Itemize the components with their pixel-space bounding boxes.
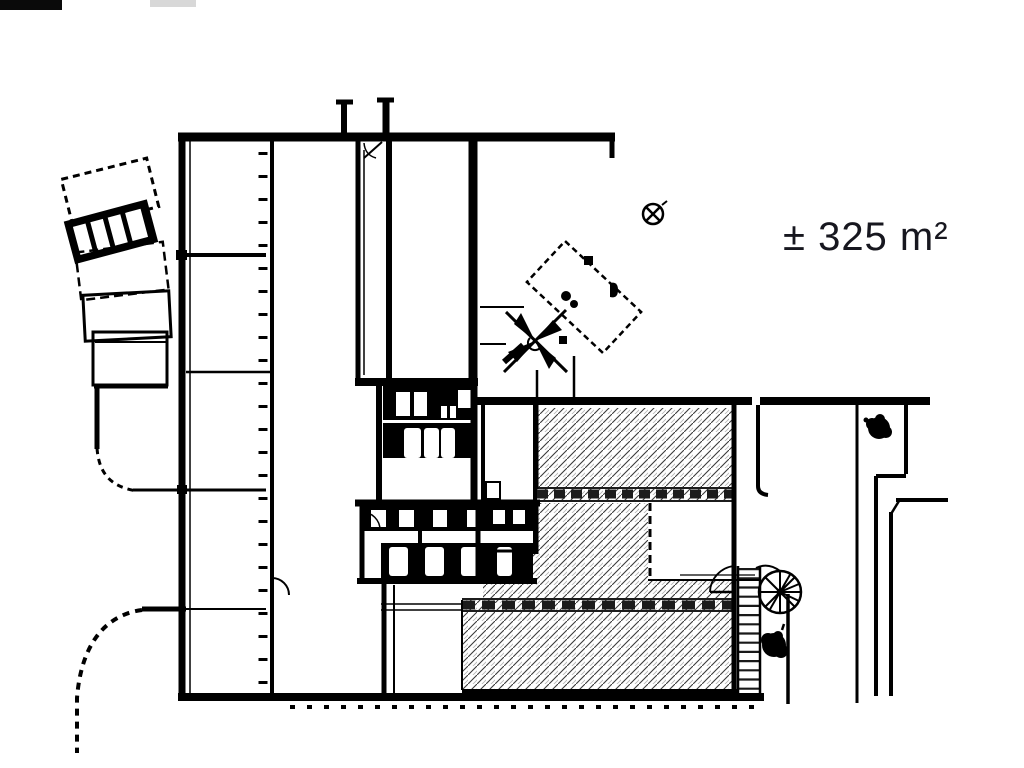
spiral-staircase-icon — [756, 566, 801, 613]
floor-plan-page: ± 325 m² — [0, 0, 1024, 768]
floor-plan-drawing — [0, 0, 1024, 768]
stall-cluster — [64, 199, 158, 264]
top-hall — [336, 100, 478, 383]
hatch-upper — [537, 408, 733, 487]
curved-annex — [61, 158, 171, 753]
site-boundary-lines — [857, 405, 948, 703]
hatch-under-room — [648, 580, 734, 598]
tree-icon-lower — [761, 624, 788, 658]
sanitary-block — [355, 379, 540, 583]
site-arc-upper — [97, 448, 137, 491]
ladder-stair-icon — [738, 566, 760, 700]
post-icon — [336, 100, 394, 137]
fixtures-upper — [383, 386, 475, 458]
survey-marker-icon — [643, 201, 667, 224]
door-arc-left-wing — [272, 578, 289, 595]
area-label: ± 325 m² — [783, 215, 949, 259]
site-arc-lower — [77, 610, 142, 753]
hatch-band-a — [537, 487, 733, 502]
tree-icon-right — [864, 414, 893, 439]
door-leaf-shaft — [364, 142, 382, 158]
hatch-lower — [462, 612, 736, 690]
